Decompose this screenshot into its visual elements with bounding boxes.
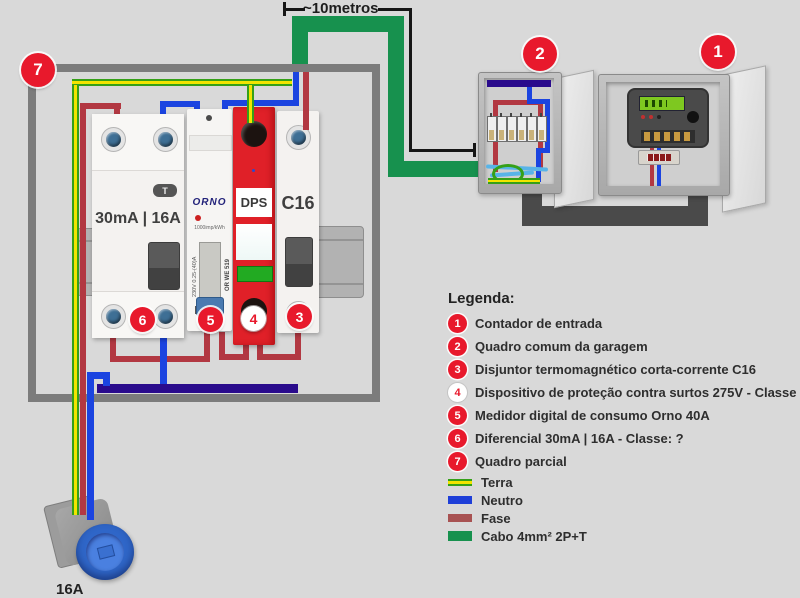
entry-fuse-label	[647, 154, 671, 161]
legend-item-7: 7 Quadro parcial	[448, 450, 800, 473]
legend-key-fase: Fase	[448, 509, 800, 527]
dps-marker-dot	[252, 169, 255, 172]
garage-neutral-bus	[487, 80, 551, 87]
legend-text-7: Quadro parcial	[475, 454, 567, 469]
legend-text-5: Medidor digital de consumo Orno 40A	[475, 408, 710, 423]
fase-wire-left-drop	[80, 103, 86, 515]
legend-text-6: Diferencial 30mA | 16A - Classe: ?	[475, 431, 684, 446]
legend-text-2: Quadro comum da garagem	[475, 339, 648, 354]
legend-badge-4: 4	[448, 383, 467, 402]
legend-item-4: 4 Dispositivo de proteção contra surtos …	[448, 381, 800, 404]
rcd-test-button[interactable]: T	[153, 184, 177, 197]
diagram-badge-6: 6	[130, 307, 155, 332]
meter-lcd	[199, 242, 221, 300]
garage-fuse-unit	[537, 116, 547, 142]
terra-wire-to-dps	[247, 85, 254, 123]
entry-box-cavity	[606, 82, 720, 186]
diagram-badge-3: 3	[287, 304, 312, 329]
fase-wire-entry-to-c16	[303, 72, 309, 130]
diagram-badge-5: 5	[198, 307, 223, 332]
socket-rating-label: 16A	[56, 581, 84, 598]
meter-imp-label: 1000imp/kWh	[187, 225, 232, 231]
neutro-label: Neutro	[481, 493, 523, 508]
diagram-badge-4: 4	[241, 306, 266, 331]
legend-badge-6: 6	[448, 429, 467, 448]
legend-key-cabo: Cabo 4mm² 2P+T	[448, 527, 800, 545]
meter-pulse-led	[195, 215, 201, 221]
neutro-wire-rcd-to-bus	[160, 334, 167, 386]
dimension-tick-right	[473, 143, 476, 157]
garage-fuse-unit	[487, 116, 497, 142]
legend-item-1: 1 Contador de entrada	[448, 312, 800, 335]
entry-fuse-holder	[638, 150, 680, 165]
meter-led	[657, 115, 661, 119]
legend-item-3: 3 Disjuntor termomagnético corta-corrent…	[448, 358, 800, 381]
breaker-toggle-switch[interactable]	[285, 237, 313, 287]
legend-title: Legenda:	[448, 290, 800, 307]
entry-meter-lcd	[639, 96, 685, 111]
legend-key-neutro: Neutro	[448, 491, 800, 509]
legend-badge-2: 2	[448, 337, 467, 356]
cabo-swatch	[448, 531, 472, 541]
legend-badge-7: 7	[448, 452, 467, 471]
meter-terminal-strip	[641, 130, 695, 143]
energy-meter-device: ORNO 1000imp/kWh 230V 0.25-(40)A OR WE 5…	[187, 109, 232, 331]
fase-jumper-dps-c16-r	[295, 332, 301, 360]
diagram-badge-1: 1	[701, 35, 735, 69]
dps-status-window	[236, 224, 272, 260]
meter-model-label: OR WE 519	[225, 259, 231, 291]
fase-jumper-meter-leg	[204, 332, 210, 362]
legend-text-3: Disjuntor termomagnético corta-corrente …	[475, 362, 756, 377]
neutral-bus-bar	[97, 384, 298, 393]
interlink-cable-bottom-run	[522, 206, 708, 226]
cable-length-label: ~10metros	[303, 0, 378, 17]
legend-item-2: 2 Quadro comum da garagem	[448, 335, 800, 358]
rcd-device: T 30mA | 16A	[92, 114, 184, 338]
cabo-label: Cabo 4mm² 2P+T	[481, 529, 587, 544]
garage-terra-bar	[488, 178, 540, 184]
dimension-line-vertical	[409, 8, 412, 152]
meter-top-screw	[206, 115, 212, 121]
fase-swatch	[448, 514, 472, 522]
legend-key-terra: Terra	[448, 473, 800, 491]
meter-led	[641, 115, 645, 119]
fase-label: Fase	[481, 511, 511, 526]
legend-badge-3: 3	[448, 360, 467, 379]
meter-rating-label: 230V 0.25-(40)A	[192, 257, 198, 297]
neutro-wire-entry-run	[222, 100, 299, 106]
meter-knob[interactable]	[687, 111, 699, 123]
rcd-terminal-screw	[153, 127, 178, 152]
din-rail-right	[316, 226, 364, 298]
meter-brand-label: ORNO	[187, 197, 232, 208]
rcd-terminal-screw	[101, 127, 126, 152]
entry-meter	[627, 88, 709, 148]
diagram-badge-2: 2	[523, 37, 557, 71]
supply-cable-down-run	[388, 16, 404, 177]
garage-box-cavity	[484, 78, 554, 184]
terra-label: Terra	[481, 475, 513, 490]
diagram-badge-7: 7	[21, 53, 55, 87]
legend-item-5: 5 Medidor digital de consumo Orno 40A	[448, 404, 800, 427]
rcd-toggle-switch[interactable]	[148, 242, 180, 290]
garage-fuse-unit	[527, 116, 537, 142]
circuit-breaker-device: C16	[277, 111, 319, 333]
dimension-line-left	[283, 8, 305, 11]
legend-item-6: 6 Diferencial 30mA | 16A - Classe: ?	[448, 427, 800, 450]
legend-badge-5: 5	[448, 406, 467, 425]
rcd-rating-label: 30mA | 16A	[92, 210, 184, 228]
garage-fuse-unit	[517, 116, 527, 142]
rcd-terminal-screw	[101, 304, 126, 329]
rcd-terminal-screw	[153, 304, 178, 329]
breaker-rating-label: C16	[277, 193, 319, 214]
lcd-segments	[645, 100, 667, 107]
meter-top-groove	[189, 135, 232, 151]
garage-fuse-unit	[497, 116, 507, 142]
legend-text-4: Dispositivo de proteção contra surtos 27…	[475, 385, 800, 400]
supply-cable-to-garage	[388, 161, 486, 177]
neutro-wire-to-socket	[87, 372, 94, 520]
meter-led	[649, 115, 653, 119]
dimension-line-right	[378, 8, 412, 11]
legend-badge-1: 1	[448, 314, 467, 333]
garage-neutro-tail	[536, 148, 541, 182]
neutro-swatch	[448, 496, 472, 504]
garage-fuse-unit	[507, 116, 517, 142]
dps-label: DPS	[241, 195, 268, 210]
terra-wire-left-drop	[72, 85, 79, 515]
dps-top-terminal	[241, 121, 267, 147]
terra-swatch	[448, 479, 472, 486]
electrical-diagram: { "dimension_label": "~10metros", "panel…	[0, 0, 800, 598]
dimension-line-bottom	[409, 149, 476, 152]
legend: Legenda: 1 Contador de entrada 2 Quadro …	[448, 290, 800, 545]
neutro-wire-entry-drop	[293, 72, 299, 106]
dps-status-indicator	[237, 266, 273, 282]
terra-bus-wire	[72, 79, 292, 86]
dps-label-window: DPS	[236, 188, 272, 217]
legend-text-1: Contador de entrada	[475, 316, 602, 331]
garage-neutro-drop	[527, 87, 532, 99]
